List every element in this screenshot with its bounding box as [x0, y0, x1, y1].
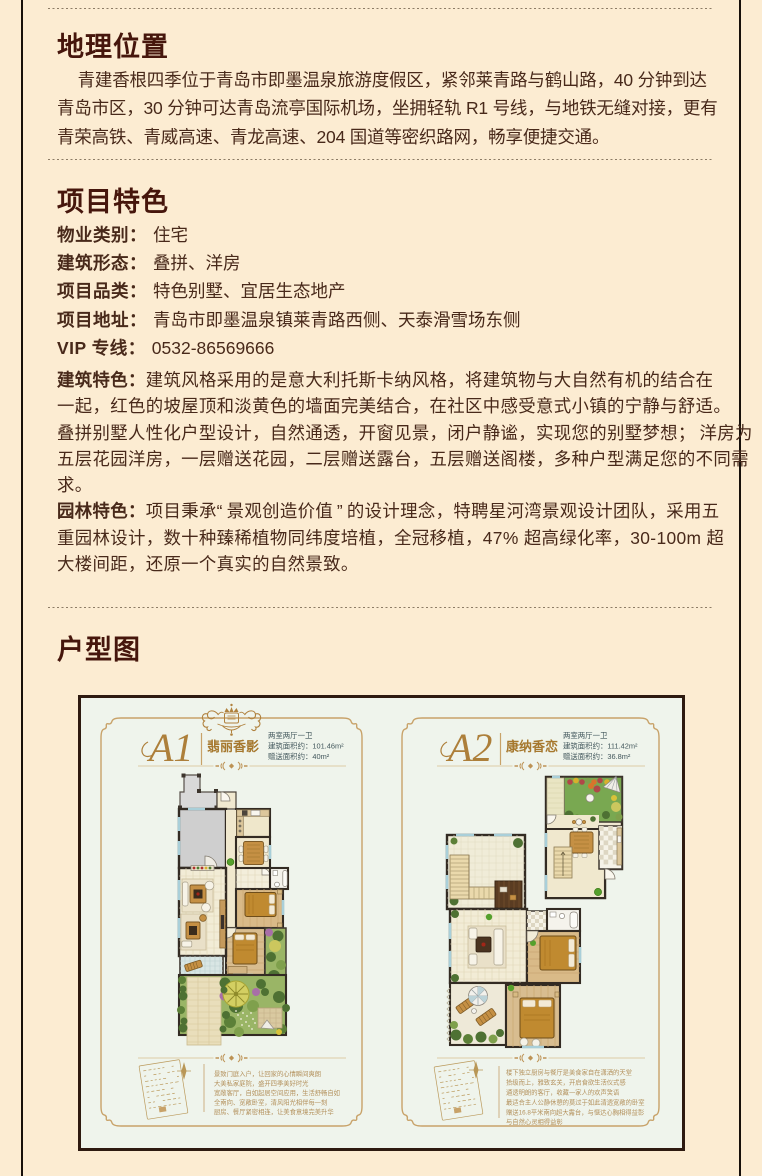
svg-text:最适合主人公静休憩的莫过于如此清透宽敞的卧室: 最适合主人公静休憩的莫过于如此清透宽敞的卧室	[506, 1098, 645, 1107]
svg-text:拾级而上，雅致玄关，开启食欲生活仪式感: 拾级而上，雅致玄关，开启食欲生活仪式感	[506, 1078, 626, 1087]
svg-text:宽敞客厅，自如起居空间应用，生活舒畅自如: 宽敞客厅，自如起居空间应用，生活舒畅自如	[214, 1088, 340, 1097]
svg-text:翡丽香影: 翡丽香影	[207, 739, 259, 754]
svg-text:厨房、餐厅紧密相连，让美食意境完美升华: 厨房、餐厅紧密相连，让美食意境完美升华	[214, 1107, 334, 1116]
svg-text:全南向、宽敞卧室，清风阳光相伴每一刻: 全南向、宽敞卧室，清风阳光相伴每一刻	[214, 1098, 327, 1107]
svg-text:与自然心灵相得益彰: 与自然心灵相得益彰	[506, 1117, 563, 1126]
svg-text:大美私家庭院，盛开四季美好时光: 大美私家庭院，盛开四季美好时光	[214, 1079, 309, 1088]
svg-text:A1: A1	[146, 725, 193, 770]
svg-text:赠送面积约：40m²: 赠送面积约：40m²	[268, 752, 330, 761]
svg-text:通透明朗的客厅，收藏一家人的欢声笑语: 通透明朗的客厅，收藏一家人的欢声笑语	[506, 1088, 620, 1097]
svg-text:赠送16.8平米南向超大露台，与惬达心胸相得益彰: 赠送16.8平米南向超大露台，与惬达心胸相得益彰	[506, 1108, 645, 1117]
svg-text:楼下独立厨房与餐厅是美食家自在潇洒的天堂: 楼下独立厨房与餐厅是美食家自在潇洒的天堂	[506, 1068, 632, 1077]
svg-text:康纳香恋: 康纳香恋	[506, 739, 558, 754]
svg-text:建筑面积约：101.46m²: 建筑面积约：101.46m²	[268, 742, 344, 751]
svg-text:建筑面积约：111.42m²: 建筑面积约：111.42m²	[563, 742, 638, 751]
svg-text:赠送面积约：36.8m²: 赠送面积约：36.8m²	[563, 752, 631, 761]
svg-text:两室两厅一卫: 两室两厅一卫	[268, 731, 313, 740]
svg-text:两室两厅一卫: 两室两厅一卫	[563, 731, 608, 740]
svg-text:A2: A2	[445, 725, 492, 770]
svg-text:景致门庭入户，让回家的心情瞬间爽朗: 景致门庭入户，让回家的心情瞬间爽朗	[214, 1069, 321, 1078]
